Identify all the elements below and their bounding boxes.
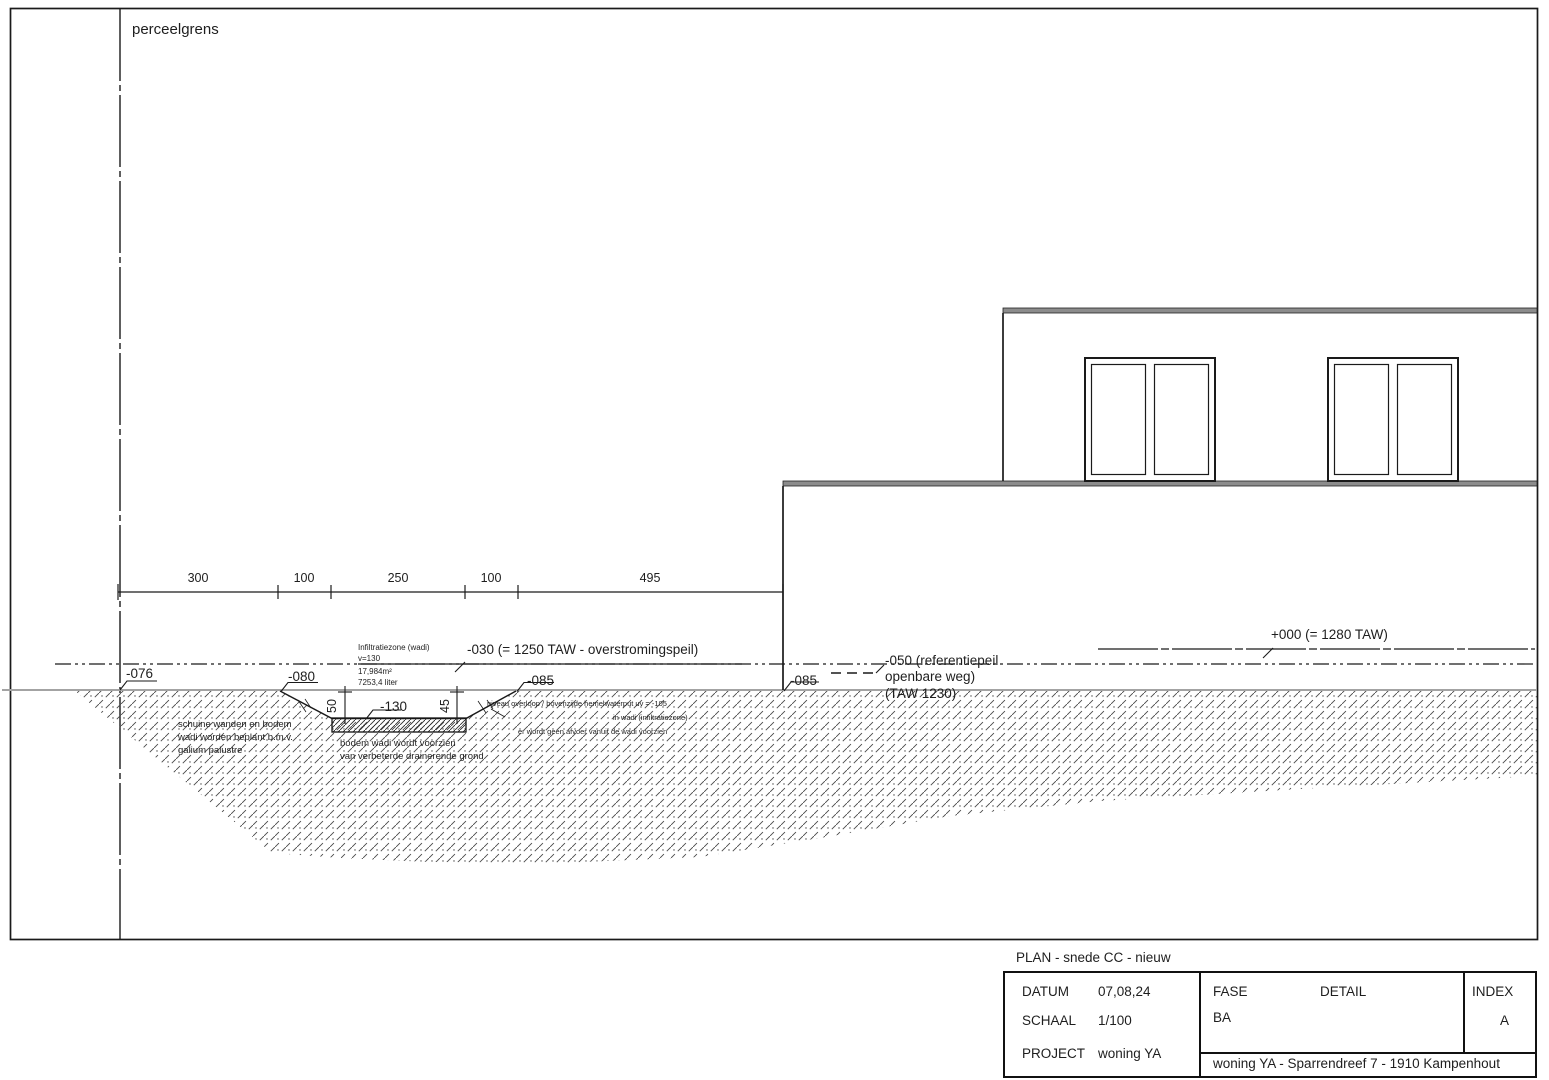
overflow-note-2: in wadi (infiltratiezone) <box>613 714 688 722</box>
architectural-section-sheet: perceelgrens 300 100 250 100 495 -076 -0… <box>0 0 1549 1080</box>
window-1 <box>1085 358 1215 481</box>
building-upper-roof-band <box>1003 308 1537 313</box>
bottom-note-1: bodem wadi wordt voorzien <box>340 739 456 749</box>
wadi-info-3: 17,984m² <box>358 668 392 677</box>
level-080: -080 <box>288 670 315 685</box>
project-address: woning YA - Sparrendreef 7 - 1910 Kampen… <box>1213 1057 1500 1072</box>
schaal-value: 1/100 <box>1098 1014 1132 1029</box>
detail-label: DETAIL <box>1320 985 1366 1000</box>
dim-100-a: 100 <box>294 572 315 586</box>
level-050-line3: (TAW 1230) <box>885 687 956 702</box>
section-drawing <box>0 0 1549 1080</box>
dim-495: 495 <box>640 572 661 586</box>
hook-076 <box>120 681 157 690</box>
perceelgrens-label: perceelgrens <box>132 22 219 39</box>
dimension-line <box>118 584 783 600</box>
wadi-depth-45: 45 <box>439 699 453 713</box>
soil-hatch <box>75 691 1537 863</box>
bottom-note-2: van verbeterde drainerende grond <box>340 752 484 762</box>
wadi-depth-50: 50 <box>326 699 340 713</box>
dim-250: 250 <box>388 572 409 586</box>
level-085-right: -085 <box>790 674 817 689</box>
project-label: PROJECT <box>1022 1047 1085 1062</box>
planting-note-3: galium palustre <box>178 746 242 756</box>
datum-label: DATUM <box>1022 985 1069 1000</box>
fase-label: FASE <box>1213 985 1248 1000</box>
window-2 <box>1328 358 1458 481</box>
schaal-label: SCHAAL <box>1022 1014 1076 1029</box>
index-label: INDEX <box>1472 985 1513 1000</box>
level-085-left: -085 <box>527 674 554 689</box>
wadi-info-1: Infiltratiezone (wadi) <box>358 644 430 653</box>
level-050-line2: openbare weg) <box>885 670 975 685</box>
wadi-info-2: v=130 <box>358 655 380 664</box>
level-000: +000 (= 1280 TAW) <box>1271 628 1388 643</box>
level-076: -076 <box>126 667 153 682</box>
level-030: -030 (= 1250 TAW - overstromingspeil) <box>467 643 698 658</box>
level-050-line1: -050 (referentiepeil <box>885 654 998 669</box>
wadi-drainage-layer <box>332 718 466 732</box>
plan-title: PLAN - snede CC - nieuw <box>1016 951 1171 966</box>
dim-100-b: 100 <box>481 572 502 586</box>
project-value: woning YA <box>1098 1047 1161 1062</box>
level-hook-050 <box>876 665 884 673</box>
index-value: A <box>1500 1014 1509 1029</box>
planting-note-1: schuine wanden en bodem <box>178 720 292 730</box>
dim-300: 300 <box>188 572 209 586</box>
overflow-note-1: niveau overloop / bovenzijde hemelwaterp… <box>487 700 667 708</box>
wadi-info-4: 7253,4 liter <box>358 679 398 688</box>
level-130: -130 <box>380 700 407 715</box>
overflow-note-3: er wordt geen afvoer vanuit de wadi voor… <box>518 728 667 736</box>
planting-note-2: wadi worden beplant b.m.v. <box>178 733 293 743</box>
datum-value: 07,08,24 <box>1098 985 1151 1000</box>
fase-value: BA <box>1213 1011 1231 1026</box>
